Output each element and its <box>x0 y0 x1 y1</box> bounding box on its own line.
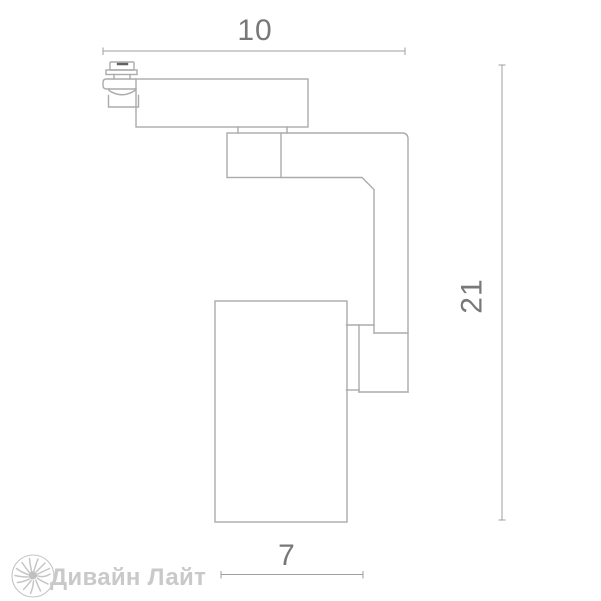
sun-burst-icon <box>12 555 54 597</box>
track-light-technical-drawing: 10 21 7 <box>0 0 601 601</box>
arm <box>281 133 408 392</box>
track-adapter-body <box>136 79 308 127</box>
brand-name: Дивайн Лайт <box>50 564 206 591</box>
track-adapter-knob <box>106 62 137 79</box>
dimension-total-height <box>499 65 506 520</box>
lock-lens <box>109 89 135 95</box>
swivel-joint <box>227 133 281 178</box>
track-light-fixture <box>103 62 408 522</box>
arm-outer-edge <box>281 133 408 392</box>
brand-watermark: Дивайн Лайт <box>12 555 206 597</box>
dimension-value-bottom: 7 <box>278 539 296 572</box>
lamp-body <box>215 301 347 522</box>
technical-drawing-page: 10 21 7 <box>0 0 601 601</box>
dimension-track-width <box>103 48 405 56</box>
mount-bracket <box>347 325 409 392</box>
lock-housing <box>103 79 136 89</box>
arm-inner-edge <box>281 178 374 334</box>
dimension-lamp-width <box>221 571 363 579</box>
adapter-lock <box>103 79 139 107</box>
dimension-value-top: 10 <box>237 14 272 47</box>
dimension-value-right: 21 <box>456 278 489 313</box>
lock-lever <box>109 96 139 108</box>
knob-flange <box>106 70 137 75</box>
